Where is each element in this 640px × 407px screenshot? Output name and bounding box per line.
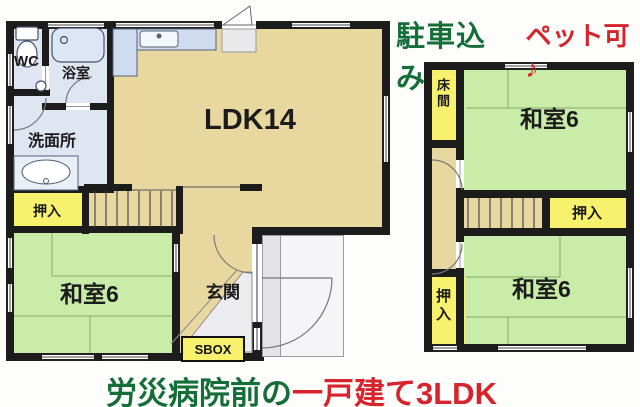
door-opening: [222, 21, 256, 29]
label-wc: WC: [14, 54, 39, 69]
door-opening: [456, 160, 464, 188]
wall: [176, 186, 183, 234]
window: [6, 54, 14, 86]
window: [6, 238, 14, 268]
wall: [456, 268, 464, 352]
wall: [84, 184, 132, 191]
window: [116, 21, 214, 29]
label-closet-2f-lower: 押入: [435, 288, 450, 324]
window: [433, 344, 457, 352]
wall: [252, 227, 390, 235]
label-sbox: SBOX: [195, 342, 232, 357]
door-opening: [456, 242, 464, 268]
door-opening: [42, 66, 49, 90]
room-stairs-2f: [458, 198, 550, 228]
window: [626, 268, 634, 318]
label-washroom: 洗面所: [28, 134, 76, 150]
window: [498, 344, 586, 352]
headline-parking: 駐車込み: [396, 13, 513, 97]
footline-location: 労災病院前の: [106, 368, 292, 407]
label-genkan: 玄関: [206, 284, 240, 301]
window: [172, 244, 180, 272]
window: [382, 96, 390, 162]
wall: [6, 89, 50, 96]
wall: [424, 62, 432, 352]
window: [6, 284, 14, 312]
wall: [240, 184, 262, 191]
headline-pets: ペット可♪: [525, 16, 640, 84]
headline: 駐車込み ペット可♪: [396, 13, 640, 97]
window: [626, 112, 634, 152]
label-japanese-1f: 和室6: [60, 283, 119, 306]
floorplan-flyer: WC 浴室 洗面所 LDK14 押入 和室6 玄関 SBOX 床間 和室6 押入…: [0, 0, 640, 407]
label-japanese-2f-lower: 和室6: [512, 278, 571, 301]
wall: [6, 226, 183, 233]
label-closet-2f-upper: 押入: [572, 206, 602, 221]
wall: [424, 140, 464, 148]
window: [292, 21, 350, 29]
door-opening: [66, 103, 90, 110]
wall: [542, 190, 550, 236]
door-opening: [252, 244, 262, 322]
shoe-box: SBOX: [181, 336, 245, 362]
window: [6, 106, 14, 144]
window: [102, 353, 148, 361]
label-closet-1f: 押入: [33, 204, 61, 218]
window: [42, 353, 94, 361]
label-bath: 浴室: [62, 66, 90, 80]
wall: [42, 103, 66, 110]
window: [48, 21, 104, 29]
wall: [90, 103, 114, 110]
wall: [424, 269, 464, 277]
footline-property: 一戸建て3LDK: [292, 368, 497, 407]
label-japanese-2f-upper: 和室6: [520, 108, 579, 131]
entrance-porch: [263, 236, 344, 357]
window: [252, 328, 262, 350]
label-ldk: LDK14: [204, 106, 296, 135]
footline: 労災病院前の 一戸建て3LDK: [106, 368, 497, 407]
